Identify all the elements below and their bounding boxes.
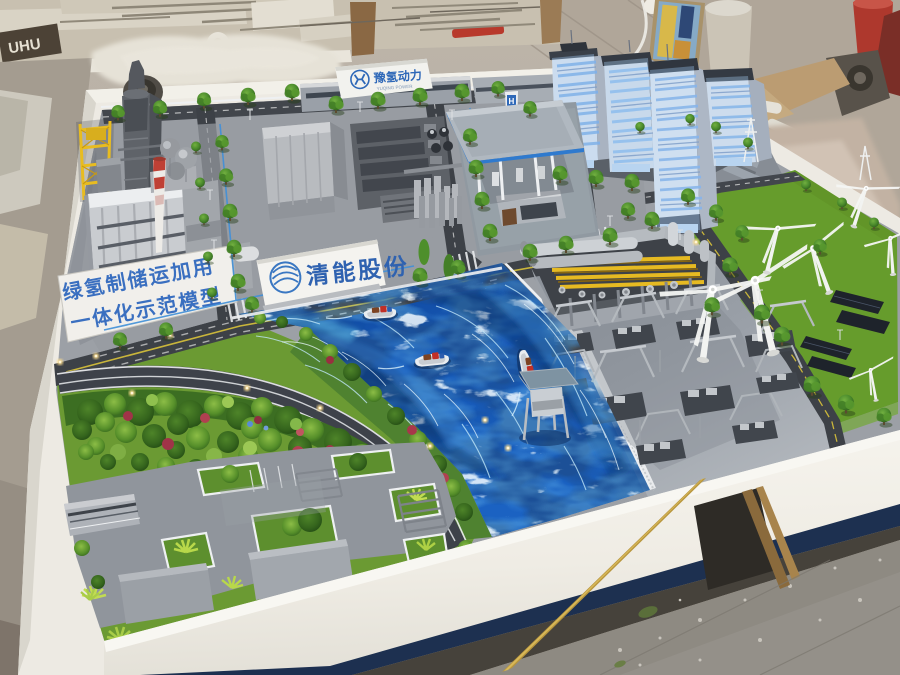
svg-text:H: H bbox=[509, 97, 515, 106]
